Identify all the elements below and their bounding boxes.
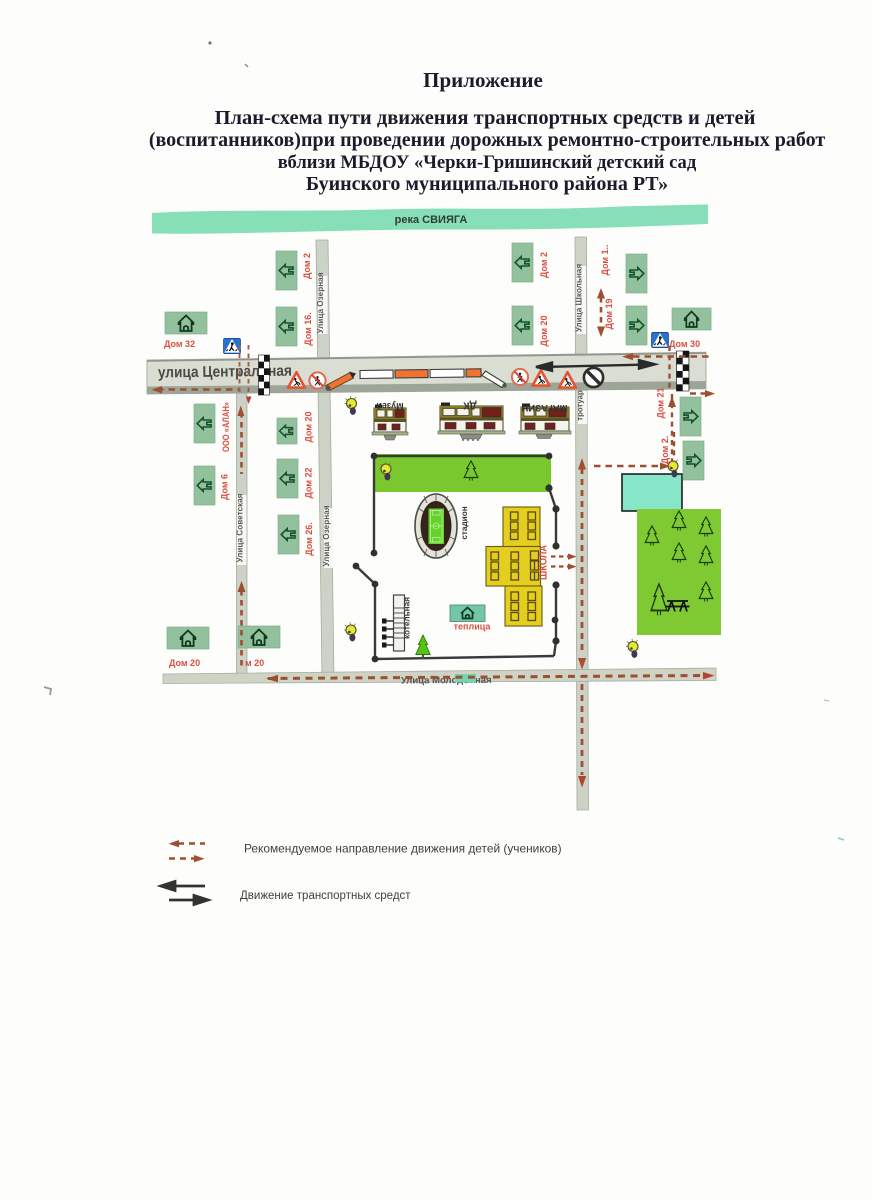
svg-text:ДК: ДК	[462, 400, 476, 411]
svg-text:Дом 6: Дом 6	[220, 474, 230, 500]
svg-text:Дом 2.: Дом 2.	[660, 436, 670, 465]
svg-text:Дом 19: Дом 19	[604, 298, 614, 329]
svg-text:Дом 22: Дом 22	[304, 467, 314, 498]
svg-text:Дом 1..: Дом 1..	[600, 244, 610, 275]
svg-text:ООО «АЛАН»: ООО «АЛАН»	[221, 402, 231, 452]
svg-text:Дом 20: Дом 20	[169, 658, 200, 668]
svg-text:река СВИЯГА: река СВИЯГА	[395, 214, 468, 226]
svg-text:Дом 20: Дом 20	[304, 411, 314, 442]
svg-text:улица Центральная: улица Центральная	[158, 363, 292, 382]
svg-text:Дом 2: Дом 2	[539, 252, 549, 278]
svg-text:Дом 16.: Дом 16.	[303, 312, 313, 346]
svg-text:Дом 32: Дом 32	[164, 339, 195, 349]
svg-text:вблизи МБДОУ «Черки-Гришинский: вблизи МБДОУ «Черки-Гришинский детский с…	[278, 152, 697, 173]
svg-text:Рекомендуемое направление движ: Рекомендуемое направление движения детей…	[244, 842, 562, 856]
svg-text:Дом 26.: Дом 26.	[304, 522, 314, 556]
svg-text:Улица Озерная: Улица Озерная	[316, 272, 325, 333]
svg-text:(воспитанников)при проведении: (воспитанников)при проведении дорожных р…	[149, 129, 826, 151]
svg-text:ШКОЛА: ШКОЛА	[539, 545, 550, 580]
svg-text:Приложение: Приложение	[423, 68, 543, 92]
svg-text:тротуар: тротуар	[576, 390, 585, 421]
svg-text:План-схема пути движения транс: План-схема пути движения транспортных ср…	[215, 107, 756, 129]
svg-text:теплица: теплица	[454, 622, 492, 632]
svg-text:Улица Озерная: Улица Озерная	[322, 505, 331, 566]
svg-text:Улица Советская: Улица Советская	[236, 493, 245, 562]
svg-text:Дом 21: Дом 21	[656, 387, 666, 418]
svg-text:Дом 2: Дом 2	[302, 253, 312, 279]
svg-text:Музей: Музей	[376, 401, 403, 411]
svg-text:Дом 20: Дом 20	[539, 315, 549, 346]
svg-text:Буинского муниципального район: Буинского муниципального района РТ»	[306, 173, 668, 195]
svg-text:МАГАЗИН: МАГАЗИН	[521, 402, 567, 413]
svg-text:Движение транспортных средст: Движение транспортных средст	[240, 890, 411, 902]
svg-text:стадион: стадион	[460, 506, 469, 539]
svg-text:м 20: м 20	[245, 658, 264, 668]
svg-text:котельная: котельная	[403, 597, 412, 639]
svg-text:Улица Школьная: Улица Школьная	[575, 264, 584, 333]
svg-text:Дом 30: Дом 30	[669, 339, 700, 349]
